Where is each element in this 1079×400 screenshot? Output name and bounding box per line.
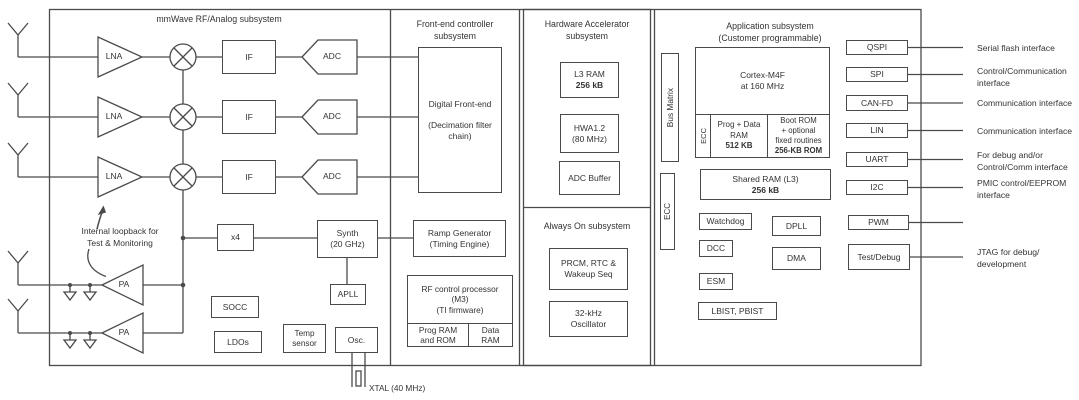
box-line-bold: 256 kB <box>752 185 779 196</box>
data-ram-cell: Data RAM <box>468 324 512 346</box>
hwa-subsystem-title: Hardware Accelerator subsystem <box>524 19 650 42</box>
title-line: Application subsystem <box>689 21 851 33</box>
i2c-box: I2C <box>846 180 908 195</box>
qspi-desc: Serial flash interface <box>977 43 1079 55</box>
box-line: Synth <box>337 228 359 239</box>
desc-line: Control/Comm interface <box>977 162 1079 174</box>
note-line: Internal loopback for <box>70 226 170 238</box>
box-line: and ROM <box>420 335 456 346</box>
loopback-note: Internal loopback for Test & Monitoring <box>70 226 170 249</box>
antenna-icon <box>8 143 28 177</box>
dcc-box: DCC <box>699 240 733 257</box>
if-stage-box: IF <box>222 40 276 74</box>
box-line: Ramp Generator <box>428 228 491 239</box>
mixer-icons <box>170 44 196 190</box>
desc-line: interface <box>977 190 1079 202</box>
ecc-box: ECC <box>660 173 675 250</box>
spi-box: SPI <box>846 67 908 82</box>
i2c-desc: PMIC control/EEPROM interface <box>977 178 1079 202</box>
tx-chain-2 <box>8 299 183 353</box>
antenna-icon <box>8 23 28 57</box>
antenna-icon <box>8 83 28 117</box>
canfd-desc: Communication interface <box>977 98 1079 110</box>
box-line: Temp <box>294 329 314 339</box>
title-line: (Customer programmable) <box>689 33 851 45</box>
desc-line: JTAG for debug/ <box>977 247 1079 259</box>
box-line: Wakeup Seq <box>564 269 612 280</box>
dpll-box: DPLL <box>772 216 821 236</box>
box-line: RAM <box>730 131 748 142</box>
lna-label: LNA <box>98 111 130 121</box>
desc-line: For debug and/or <box>977 150 1079 162</box>
xtal-label: XTAL (40 MHz) <box>369 383 449 393</box>
adc-label: ADC <box>310 51 354 61</box>
test-debug-box: Test/Debug <box>848 244 910 270</box>
hwa-engine-box: HWA1.2 (80 MHz) <box>560 114 619 153</box>
desc-line: development <box>977 259 1079 271</box>
box-line: Prog RAM <box>419 325 457 336</box>
desc-line: Serial flash interface <box>977 43 1079 55</box>
antenna-icon <box>8 299 28 333</box>
box-line: Prog + Data <box>718 120 761 131</box>
box-line: PRCM, RTC & <box>561 258 616 269</box>
desc-line: PMIC control/EEPROM <box>977 178 1079 190</box>
socc-box: SOCC <box>211 296 259 318</box>
prog-data-ram-cell: Prog + Data RAM 512 KB <box>710 115 767 157</box>
desc-line: interface <box>977 78 1079 90</box>
box-line: Data <box>482 325 500 336</box>
rx-chain-3 <box>8 143 418 197</box>
desc-line: Communication interface <box>977 126 1079 138</box>
pwm-box: PWM <box>848 215 909 230</box>
esm-box: ESM <box>699 273 733 290</box>
crystal-icon <box>352 353 365 387</box>
boot-rom-cell: Boot ROM + optional fixed routines 256-K… <box>767 115 829 157</box>
desc-line: Communication interface <box>977 98 1079 110</box>
shared-ram-box: Shared RAM (L3) 256 kB <box>700 169 831 200</box>
osc-32khz-box: 32-kHz Oscillator <box>549 301 628 337</box>
box-line: (TI firmware) <box>436 305 483 316</box>
box-line: at 160 MHz <box>741 81 784 92</box>
temp-sensor-box: Temp sensor <box>283 324 326 353</box>
test-debug-desc: JTAG for debug/ development <box>977 247 1079 271</box>
ground-icon <box>64 333 96 348</box>
box-line: (20 GHz) <box>330 239 364 250</box>
box-line: RAM <box>481 335 499 346</box>
mmwave-subsystem-title: mmWave RF/Analog subsystem <box>119 14 319 26</box>
if-stage-box: IF <box>222 100 276 134</box>
box-line: (M3) <box>451 294 468 305</box>
digital-frontend-box: Digital Front-end (Decimation filter cha… <box>418 47 502 193</box>
adc-buffer-box: ADC Buffer <box>559 161 620 195</box>
box-line-bold: 256 kB <box>576 80 603 91</box>
ecc-label: ECC <box>698 128 709 144</box>
box-line: (Decimation filter <box>428 120 492 131</box>
title-line: Hardware Accelerator <box>524 19 650 31</box>
rf-processor-section: RF control processor (M3) (TI firmware) <box>408 276 512 323</box>
antenna-icon <box>8 251 28 285</box>
cortex-core-section: Cortex-M4F at 160 MHz <box>696 48 829 114</box>
box-line: Digital Front-end <box>429 99 492 110</box>
circuit-wires <box>0 0 1079 400</box>
app-subsystem-title: Application subsystem (Customer programm… <box>689 21 851 44</box>
if-stage-box: IF <box>222 160 276 194</box>
cortex-memories: ECC Prog + Data RAM 512 KB Boot ROM + op… <box>696 114 829 157</box>
box-line: chain) <box>448 131 471 142</box>
qspi-box: QSPI <box>846 40 908 55</box>
dma-box: DMA <box>772 247 821 270</box>
box-line: (80 MHz) <box>572 134 607 145</box>
box-line: fixed routines <box>775 136 821 146</box>
box-line: Boot ROM <box>780 116 816 126</box>
box-line: 32-kHz <box>575 308 602 319</box>
pa-label: PA <box>108 327 140 337</box>
osc-box: Osc. <box>335 327 378 353</box>
rx-chain-1 <box>8 23 418 77</box>
rf-processor-memories: Prog RAM and ROM Data RAM <box>408 323 512 346</box>
adc-label: ADC <box>310 171 354 181</box>
ground-icon <box>64 285 96 300</box>
uart-desc: For debug and/or Control/Comm interface <box>977 150 1079 174</box>
ecc-label: ECC <box>662 203 673 220</box>
bus-matrix-box: Bus Matrix <box>661 53 679 162</box>
lin-box: LIN <box>846 123 908 138</box>
rf-control-processor-box: RF control processor (M3) (TI firmware) … <box>407 275 513 347</box>
title-line: Front-end controller <box>399 19 511 31</box>
ramp-generator-box: Ramp Generator (Timing Engine) <box>413 220 506 257</box>
apll-box: APLL <box>330 284 366 305</box>
x4-multiplier-box: x4 <box>217 224 254 251</box>
canfd-box: CAN-FD <box>846 95 908 111</box>
adc-label: ADC <box>310 111 354 121</box>
box-line: RF control processor <box>421 284 498 295</box>
alwayson-subsystem-title: Always On subsystem <box>524 221 650 233</box>
l3-ram-box: L3 RAM 256 kB <box>560 62 619 98</box>
box-line: HWA1.2 <box>574 123 605 134</box>
title-line: subsystem <box>524 31 650 43</box>
box-line-bold: 256-KB ROM <box>775 146 822 156</box>
note-line: Test & Monitoring <box>70 238 170 250</box>
cortex-ecc-cell: ECC <box>696 115 710 157</box>
synth-box: Synth (20 GHz) <box>317 220 378 258</box>
title-line: subsystem <box>399 31 511 43</box>
uart-box: UART <box>846 152 908 167</box>
rx-chain-2 <box>8 83 418 137</box>
lbist-pbist-box: LBIST, PBIST <box>698 302 777 320</box>
watchdog-box: Watchdog <box>699 213 752 230</box>
lin-desc: Communication interface <box>977 126 1079 138</box>
spi-desc: Control/Communication interface <box>977 66 1079 90</box>
lna-label: LNA <box>98 51 130 61</box>
box-line: Shared RAM (L3) <box>732 174 798 185</box>
box-line: L3 RAM <box>574 69 605 80</box>
ldos-box: LDOs <box>214 331 262 353</box>
interface-wires <box>908 48 963 258</box>
lna-label: LNA <box>98 171 130 181</box>
box-line-bold: 512 KB <box>725 141 752 152</box>
box-line: (Timing Engine) <box>430 239 490 250</box>
soc-block-diagram: mmWave RF/Analog subsystem Front-end con… <box>0 0 1079 400</box>
desc-line: Control/Communication <box>977 66 1079 78</box>
box-line: sensor <box>292 339 317 349</box>
tx-chain-1 <box>8 251 183 305</box>
box-line: Oscillator <box>571 319 606 330</box>
bus-matrix-label: Bus Matrix <box>665 88 676 127</box>
prcm-rtc-box: PRCM, RTC & Wakeup Seq <box>549 248 628 290</box>
cortex-m4f-box: Cortex-M4F at 160 MHz ECC Prog + Data RA… <box>695 47 830 158</box>
frontend-subsystem-title: Front-end controller subsystem <box>399 19 511 42</box>
box-line: + optional <box>781 126 815 136</box>
prog-ram-rom-cell: Prog RAM and ROM <box>408 324 468 346</box>
box-line: Cortex-M4F <box>740 70 785 81</box>
pa-label: PA <box>108 279 140 289</box>
